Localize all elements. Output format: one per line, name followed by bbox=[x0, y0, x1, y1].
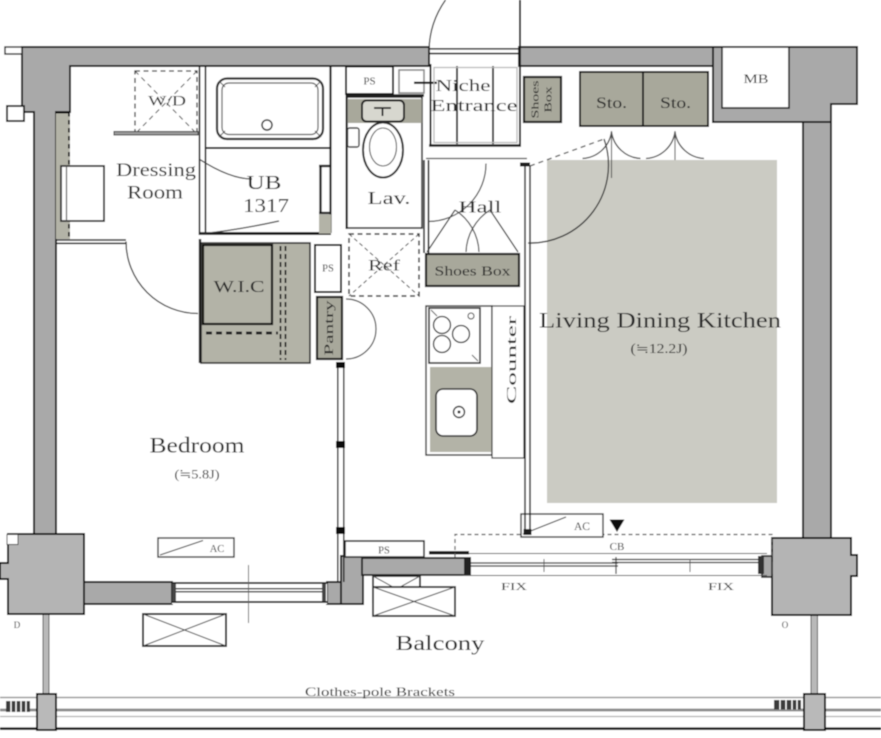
svg-text:CB: CB bbox=[610, 541, 625, 553]
svg-text:PS: PS bbox=[363, 76, 375, 88]
svg-text:Entrance: Entrance bbox=[431, 96, 518, 115]
svg-text:PS: PS bbox=[378, 546, 390, 557]
svg-text:Ref: Ref bbox=[368, 258, 401, 275]
svg-text:Lav.: Lav. bbox=[368, 188, 411, 208]
svg-text:Hall: Hall bbox=[459, 198, 502, 217]
svg-text:MB: MB bbox=[744, 72, 769, 86]
svg-text:Clothes-pole Brackets: Clothes-pole Brackets bbox=[305, 684, 455, 699]
svg-text:UB: UB bbox=[247, 172, 282, 194]
svg-text:AC: AC bbox=[574, 521, 590, 533]
svg-text:Counter: Counter bbox=[504, 315, 519, 404]
svg-text:D: D bbox=[14, 620, 21, 630]
svg-text:Niche: Niche bbox=[436, 76, 491, 95]
svg-text:Pantry: Pantry bbox=[322, 299, 336, 355]
svg-text:Room: Room bbox=[127, 183, 183, 204]
svg-text:W.I.C: W.I.C bbox=[214, 277, 265, 296]
svg-text:Sto.: Sto. bbox=[660, 95, 691, 112]
svg-text:Sto.: Sto. bbox=[596, 95, 627, 112]
svg-text:FIX: FIX bbox=[708, 581, 734, 593]
svg-text:(≒5.8J): (≒5.8J) bbox=[175, 467, 220, 482]
svg-text:Living Dining Kitchen: Living Dining Kitchen bbox=[539, 308, 781, 333]
svg-text:O: O bbox=[782, 620, 789, 630]
svg-text:Shoes: Shoes bbox=[531, 80, 542, 118]
svg-text:Bedroom: Bedroom bbox=[150, 433, 245, 458]
svg-text:1317: 1317 bbox=[243, 195, 289, 217]
svg-text:PS: PS bbox=[322, 264, 334, 275]
svg-text:(≒12.2J): (≒12.2J) bbox=[631, 342, 688, 357]
svg-text:FIX: FIX bbox=[501, 581, 527, 593]
svg-text:W/D: W/D bbox=[148, 94, 186, 110]
svg-text:Box: Box bbox=[544, 87, 555, 113]
svg-text:Shoes Box: Shoes Box bbox=[435, 264, 511, 279]
svg-text:Dressing: Dressing bbox=[116, 160, 197, 181]
svg-text:Balcony: Balcony bbox=[396, 631, 486, 655]
svg-text:AC: AC bbox=[210, 544, 225, 555]
